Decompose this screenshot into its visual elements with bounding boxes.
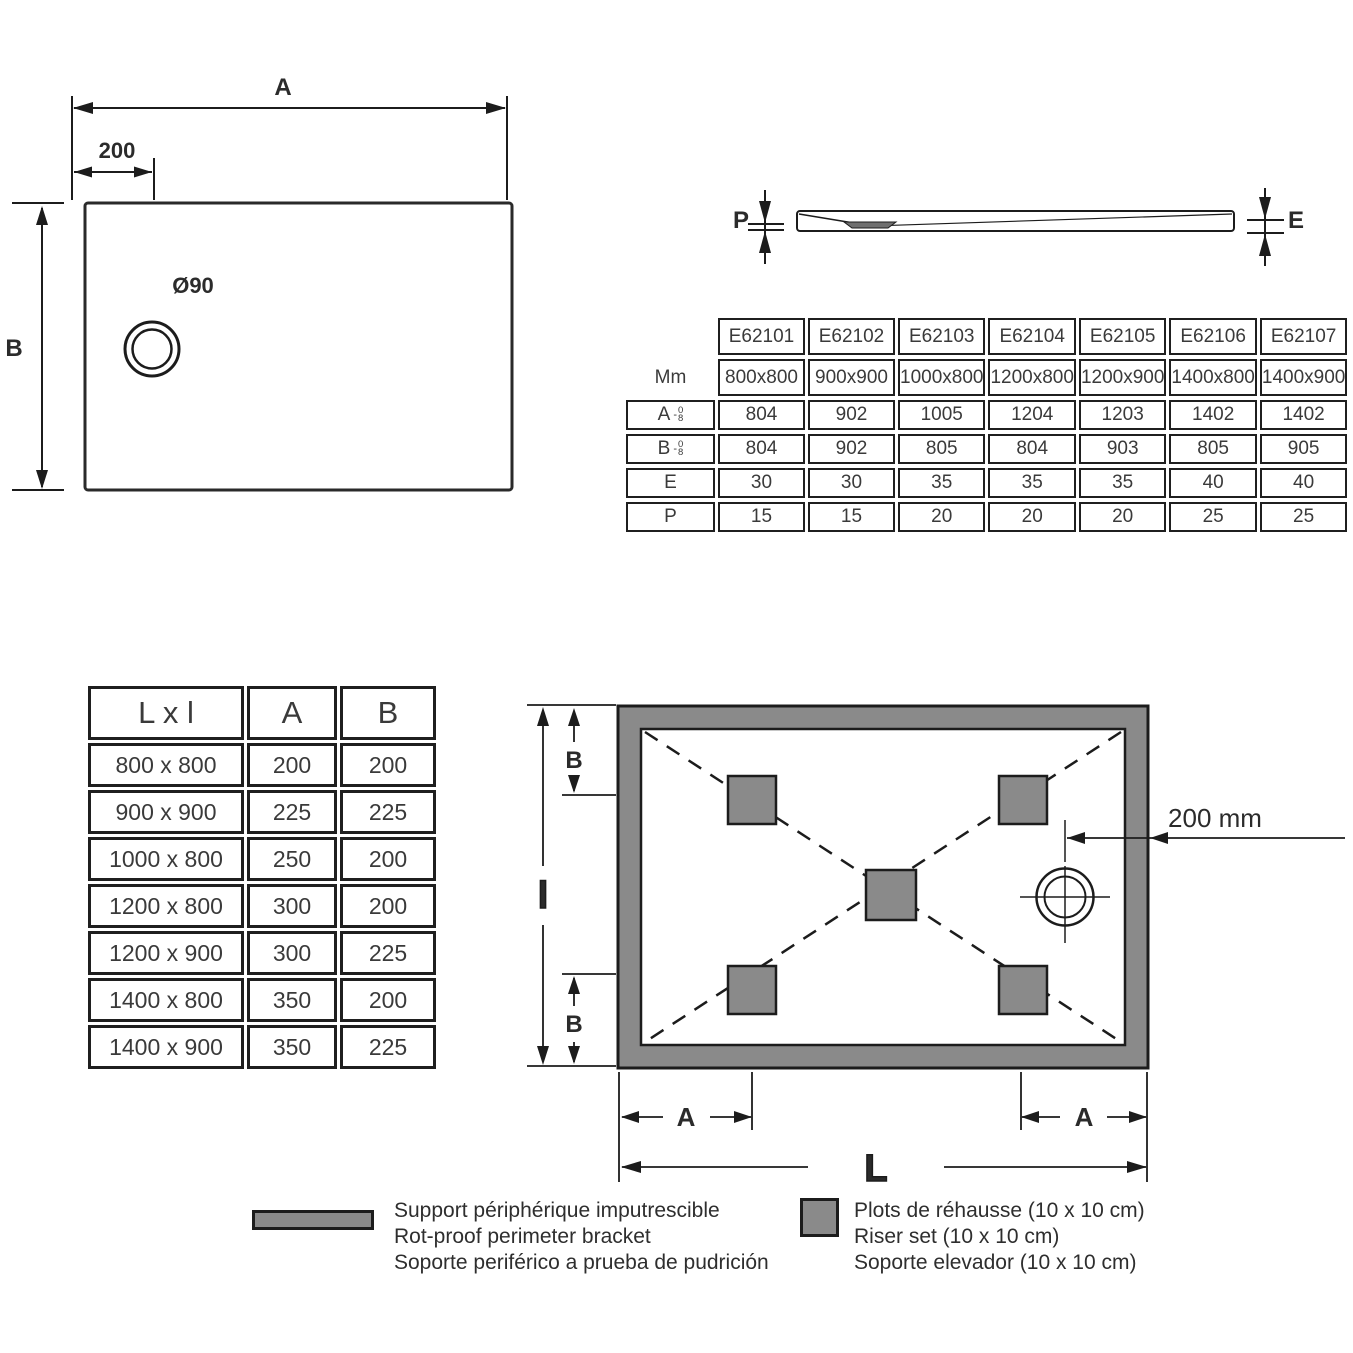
spec-cell: 804 <box>988 434 1075 464</box>
spec-row-label: E <box>626 468 715 498</box>
dim-label-e: E <box>1288 207 1304 234</box>
spec-code: E62102 <box>808 318 895 355</box>
size-cell: 1200 x 800 <box>88 884 244 928</box>
spec-cell: 20 <box>1079 502 1166 532</box>
size-cell: 225 <box>247 790 337 834</box>
size-cell: 300 <box>247 884 337 928</box>
riser-pad-top-left <box>728 776 776 824</box>
size-header-b: B <box>340 686 436 740</box>
spec-mm-row: Mm 800x800 900x900 1000x800 1200x800 120… <box>626 359 1347 396</box>
spec-cell: 805 <box>1169 434 1256 464</box>
profile-view-drawing: P E <box>700 150 1353 280</box>
dim-label-a: A <box>274 74 291 101</box>
size-cell: 250 <box>247 837 337 881</box>
table-row: 1400 x 900 350 225 <box>88 1025 436 1069</box>
spec-cell: 1203 <box>1079 400 1166 430</box>
spec-cell: 804 <box>718 434 805 464</box>
size-cell: 200 <box>340 743 436 787</box>
size-cell: 225 <box>340 790 436 834</box>
legend-line-en: Riser set (10 x 10 cm) <box>854 1224 1145 1250</box>
spec-cell: 1402 <box>1260 400 1347 430</box>
spec-cell: 905 <box>1260 434 1347 464</box>
plan-label-b-top: B <box>565 747 582 774</box>
spec-sheet-page: A 200 B Ø90 P E E6 <box>0 0 1353 1353</box>
plan-view-drawing: B l B 200 mm A A L <box>500 680 1353 1200</box>
spec-code: E62105 <box>1079 318 1166 355</box>
spec-b-row: B-08 804 902 805 804 903 805 905 <box>626 434 1347 464</box>
size-cell: 1200 x 900 <box>88 931 244 975</box>
spec-cell: 800x800 <box>718 359 805 396</box>
riser-pad-bottom-right <box>999 966 1047 1014</box>
spec-cell: 20 <box>988 502 1075 532</box>
spec-cell: 1000x800 <box>898 359 985 396</box>
spec-cell: 40 <box>1260 468 1347 498</box>
spec-cell: 25 <box>1260 502 1347 532</box>
legend-line-es: Soporte elevador (10 x 10 cm) <box>854 1250 1145 1276</box>
table-row: 800 x 800 200 200 <box>88 743 436 787</box>
size-cell: 1400 x 900 <box>88 1025 244 1069</box>
perimeter-bracket-legend: Support périphérique imputrescible Rot-p… <box>394 1198 769 1276</box>
top-view-drawing: A 200 B Ø90 <box>0 60 570 520</box>
spec-e-row: E 30 30 35 35 35 40 40 <box>626 468 1347 498</box>
size-cell: 200 <box>247 743 337 787</box>
plan-label-drain-offset: 200 mm <box>1168 803 1262 833</box>
plan-label-a-right: A <box>1075 1102 1094 1132</box>
riser-pad-center <box>866 870 916 920</box>
spec-code: E62103 <box>898 318 985 355</box>
riser-pad-swatch <box>800 1198 839 1237</box>
size-header-lxl: L x l <box>88 686 244 740</box>
spec-cell: 1200x900 <box>1079 359 1166 396</box>
spec-cell: 25 <box>1169 502 1256 532</box>
spec-cell: 30 <box>718 468 805 498</box>
perimeter-bracket-swatch <box>252 1210 374 1230</box>
size-cell: 200 <box>340 837 436 881</box>
spec-cell: 902 <box>808 434 895 464</box>
riser-pad-bottom-left <box>728 966 776 1014</box>
spec-row-label: Mm <box>626 359 715 396</box>
spec-codes-row: E62101 E62102 E62103 E62104 E62105 E6210… <box>626 318 1347 355</box>
spec-cell: 1402 <box>1169 400 1256 430</box>
spec-cell: 903 <box>1079 434 1166 464</box>
spec-row-label: B-08 <box>626 434 715 464</box>
plan-label-length: L <box>864 1148 887 1190</box>
spec-cell: 1200x800 <box>988 359 1075 396</box>
table-row: 1200 x 900 300 225 <box>88 931 436 975</box>
spec-code: E62101 <box>718 318 805 355</box>
size-cell: 900 x 900 <box>88 790 244 834</box>
drain-hole <box>125 322 179 376</box>
spec-cell: 1400x900 <box>1260 359 1347 396</box>
table-row: 1000 x 800 250 200 <box>88 837 436 881</box>
drain-diameter-label: Ø90 <box>172 273 214 298</box>
legend-line-es: Soporte periférico a prueba de pudrición <box>394 1250 769 1276</box>
spec-cell: 1204 <box>988 400 1075 430</box>
dim-label-p: P <box>733 207 749 234</box>
table-row: 1200 x 800 300 200 <box>88 884 436 928</box>
size-cell: 225 <box>340 1025 436 1069</box>
spec-code: E62104 <box>988 318 1075 355</box>
size-header-row: L x l A B <box>88 686 436 740</box>
legend-line-en: Rot-proof perimeter bracket <box>394 1224 769 1250</box>
size-cell: 350 <box>247 978 337 1022</box>
spec-cell: 40 <box>1169 468 1256 498</box>
spec-row-label: P <box>626 502 715 532</box>
spec-cell: 15 <box>808 502 895 532</box>
size-cell: 300 <box>247 931 337 975</box>
size-cell: 1000 x 800 <box>88 837 244 881</box>
size-cell: 225 <box>340 931 436 975</box>
spec-cell: 1400x800 <box>1169 359 1256 396</box>
legend-line-fr: Support périphérique imputrescible <box>394 1198 769 1224</box>
spec-code: E62106 <box>1169 318 1256 355</box>
spec-cell: 804 <box>718 400 805 430</box>
spec-table: E62101 E62102 E62103 E62104 E62105 E6210… <box>623 314 1350 536</box>
legend-line-fr: Plots de réhausse (10 x 10 cm) <box>854 1198 1145 1224</box>
riser-set-legend: Plots de réhausse (10 x 10 cm) Riser set… <box>854 1198 1145 1276</box>
plan-label-b-bottom: B <box>565 1011 582 1038</box>
table-row: 1400 x 800 350 200 <box>88 978 436 1022</box>
size-table: L x l A B 800 x 800 200 200 900 x 900 22… <box>85 683 439 1072</box>
size-cell: 1400 x 800 <box>88 978 244 1022</box>
plan-label-l-side: l <box>538 875 549 917</box>
spec-corner-cell <box>626 318 715 355</box>
spec-cell: 900x900 <box>808 359 895 396</box>
size-cell: 800 x 800 <box>88 743 244 787</box>
size-cell: 200 <box>340 884 436 928</box>
plan-label-a-left: A <box>677 1102 696 1132</box>
size-cell: 200 <box>340 978 436 1022</box>
spec-p-row: P 15 15 20 20 20 25 25 <box>626 502 1347 532</box>
spec-a-row: A-08 804 902 1005 1204 1203 1402 1402 <box>626 400 1347 430</box>
spec-code: E62107 <box>1260 318 1347 355</box>
spec-cell: 805 <box>898 434 985 464</box>
spec-cell: 35 <box>1079 468 1166 498</box>
spec-cell: 902 <box>808 400 895 430</box>
spec-cell: 15 <box>718 502 805 532</box>
size-header-a: A <box>247 686 337 740</box>
dim-label-b: B <box>5 335 22 362</box>
dim-label-200: 200 <box>99 138 136 163</box>
spec-cell: 30 <box>808 468 895 498</box>
riser-pad-top-right <box>999 776 1047 824</box>
spec-cell: 35 <box>988 468 1075 498</box>
drain-recess <box>844 222 896 228</box>
table-row: 900 x 900 225 225 <box>88 790 436 834</box>
spec-row-label: A-08 <box>626 400 715 430</box>
spec-cell: 35 <box>898 468 985 498</box>
spec-cell: 20 <box>898 502 985 532</box>
spec-cell: 1005 <box>898 400 985 430</box>
size-cell: 350 <box>247 1025 337 1069</box>
